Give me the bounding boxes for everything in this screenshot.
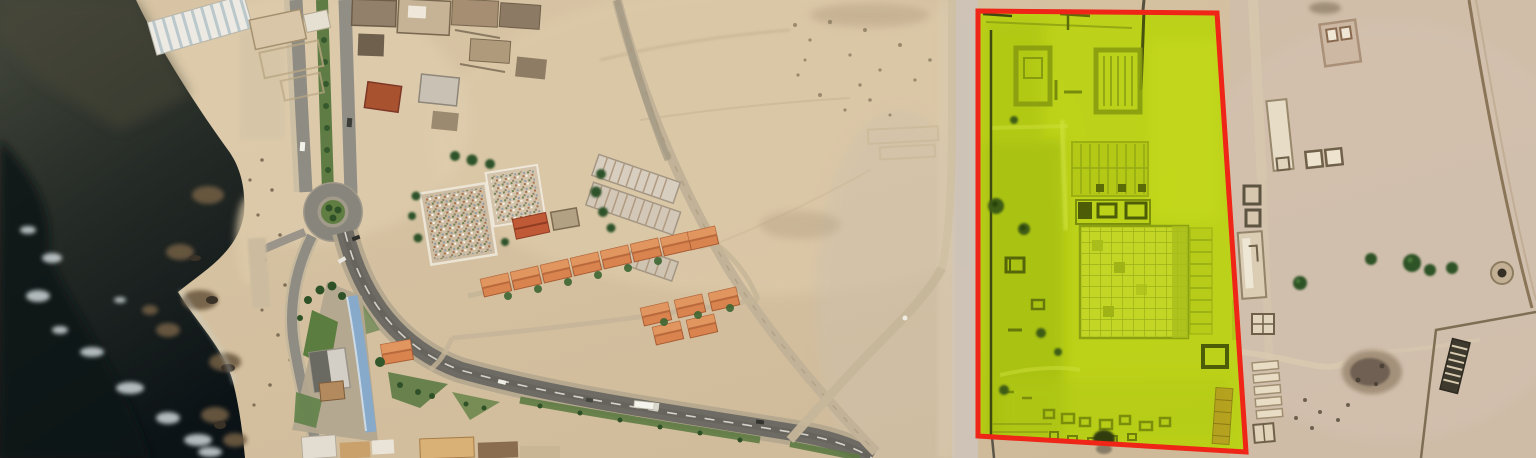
car — [300, 142, 306, 151]
ruin-compound-ne — [1319, 20, 1360, 67]
water-well — [1491, 262, 1513, 284]
ruin-grid-b2 — [1253, 423, 1274, 443]
ruin-tiny-grid — [1252, 314, 1274, 334]
highlighted-parcel-overlay[interactable] — [978, 10, 1246, 452]
car — [903, 316, 908, 321]
satellite-map-canvas[interactable] — [0, 0, 1536, 458]
ruin-rect-j — [1238, 231, 1267, 299]
gray-warehouse — [419, 74, 460, 106]
aerial-imagery — [0, 0, 1536, 458]
ruin-terraces — [1252, 361, 1283, 419]
red-brown-building — [364, 82, 401, 112]
car — [347, 118, 353, 127]
